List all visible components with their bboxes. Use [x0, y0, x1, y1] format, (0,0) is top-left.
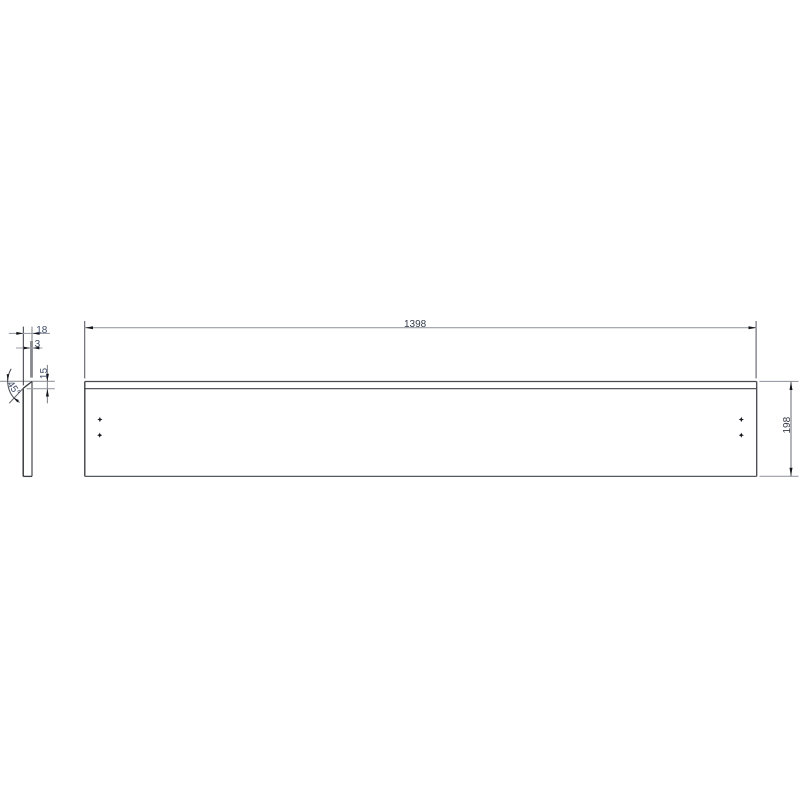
svg-text:3: 3: [35, 339, 41, 350]
svg-text:15: 15: [39, 368, 50, 380]
svg-text:18: 18: [36, 325, 48, 336]
svg-text:1398: 1398: [404, 319, 427, 330]
svg-text:198: 198: [782, 416, 793, 433]
